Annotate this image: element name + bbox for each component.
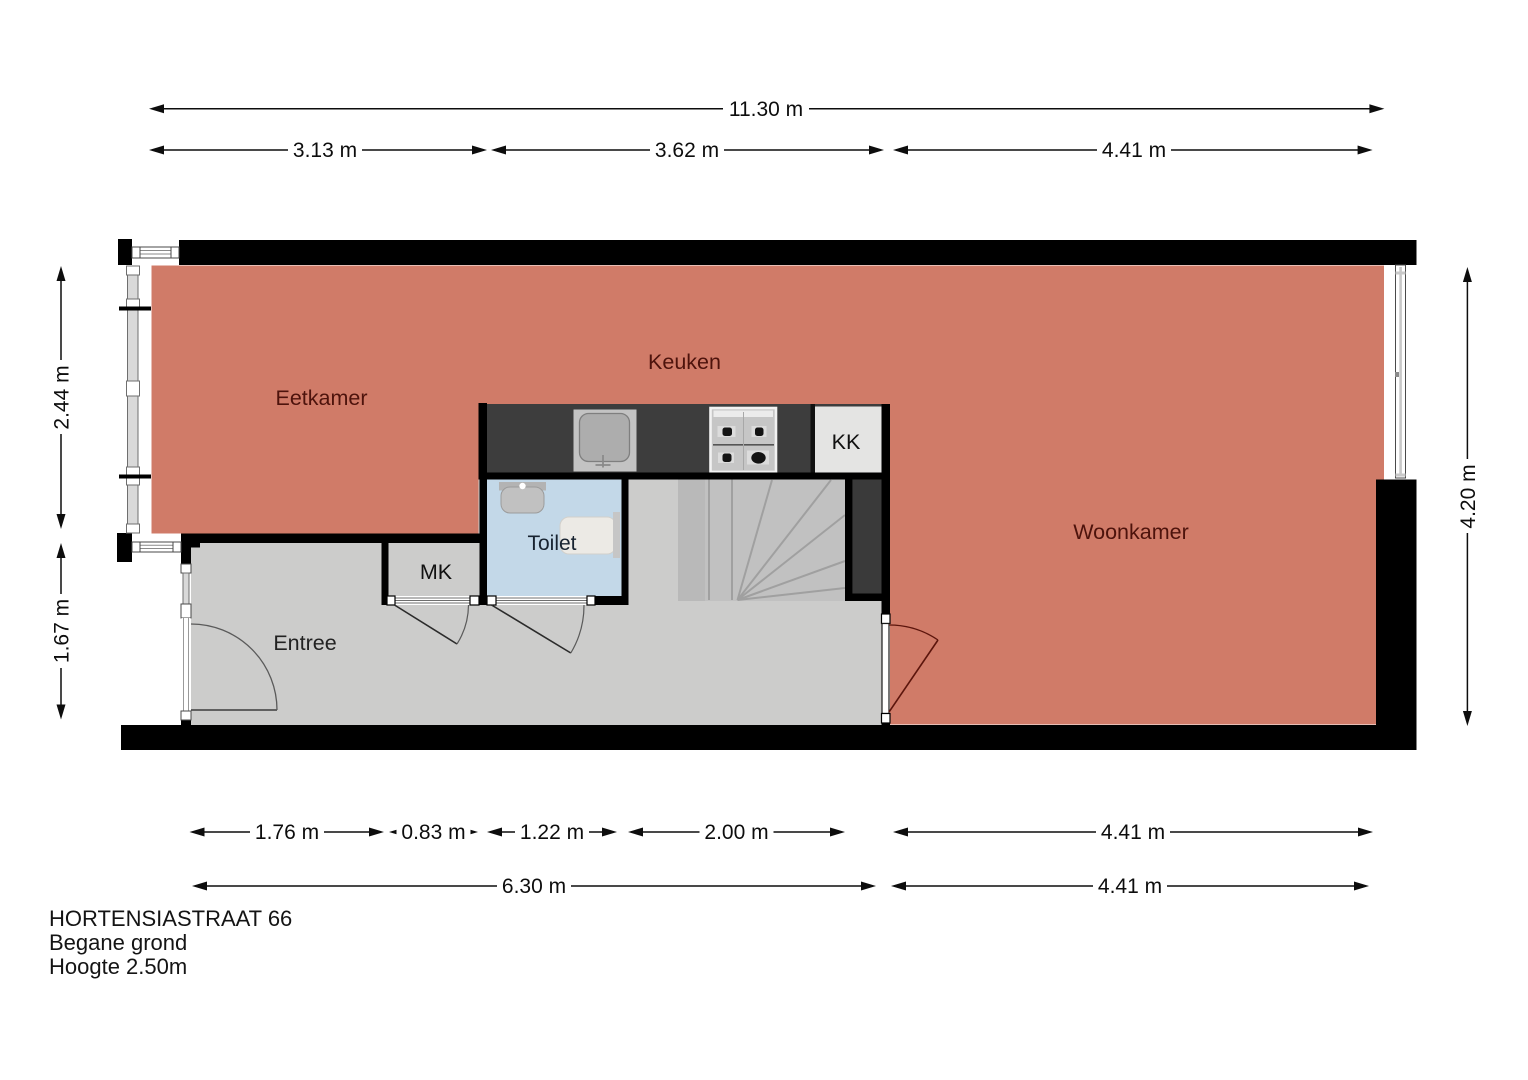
svg-text:4.41 m: 4.41 m bbox=[1098, 875, 1162, 898]
svg-text:2.44 m: 2.44 m bbox=[51, 365, 74, 429]
svg-text:11.30 m: 11.30 m bbox=[729, 98, 803, 121]
svg-text:0.83 m: 0.83 m bbox=[401, 821, 465, 844]
svg-text:1.22 m: 1.22 m bbox=[520, 821, 584, 844]
svg-text:Toilet: Toilet bbox=[527, 532, 576, 555]
svg-text:HORTENSIASTRAAT 66: HORTENSIASTRAAT 66 bbox=[49, 906, 292, 931]
svg-text:Eetkamer: Eetkamer bbox=[275, 386, 367, 410]
svg-text:2.00 m: 2.00 m bbox=[704, 821, 768, 844]
svg-text:Keuken: Keuken bbox=[648, 350, 721, 374]
svg-text:Woonkamer: Woonkamer bbox=[1073, 520, 1189, 544]
svg-text:1.76 m: 1.76 m bbox=[255, 821, 319, 844]
svg-text:4.20 m: 4.20 m bbox=[1457, 464, 1480, 528]
svg-text:KK: KK bbox=[832, 430, 861, 454]
svg-text:Entree: Entree bbox=[273, 631, 336, 655]
svg-text:Hoogte 2.50m: Hoogte 2.50m bbox=[49, 954, 187, 979]
svg-text:4.41 m: 4.41 m bbox=[1102, 139, 1166, 162]
svg-text:Begane grond: Begane grond bbox=[49, 930, 187, 955]
svg-text:3.13 m: 3.13 m bbox=[293, 139, 357, 162]
svg-text:1.67 m: 1.67 m bbox=[51, 599, 74, 663]
svg-text:4.41 m: 4.41 m bbox=[1101, 821, 1165, 844]
svg-text:MK: MK bbox=[420, 560, 453, 584]
svg-text:6.30 m: 6.30 m bbox=[502, 875, 566, 898]
svg-text:3.62 m: 3.62 m bbox=[655, 139, 719, 162]
